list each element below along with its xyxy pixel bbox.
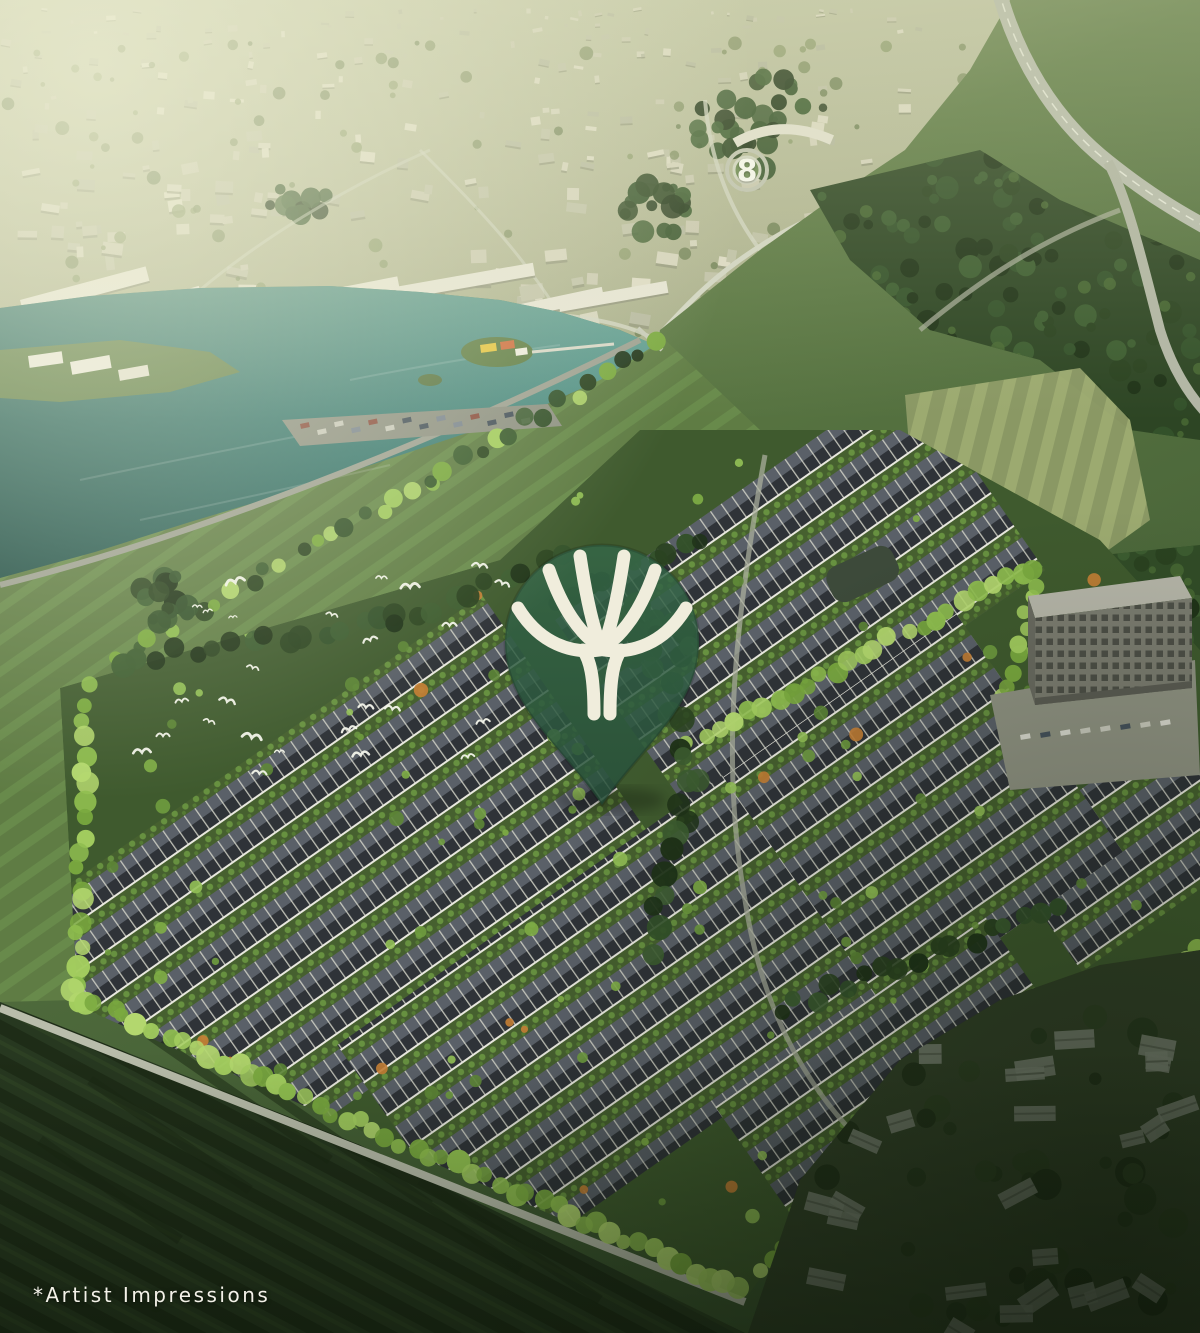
atmosphere <box>0 0 1200 1333</box>
aerial-scene-svg: 8 <box>0 0 1200 1333</box>
artist-impressions-caption: *Artist Impressions <box>33 1283 270 1307</box>
aerial-render: 8 <box>0 0 1200 1333</box>
